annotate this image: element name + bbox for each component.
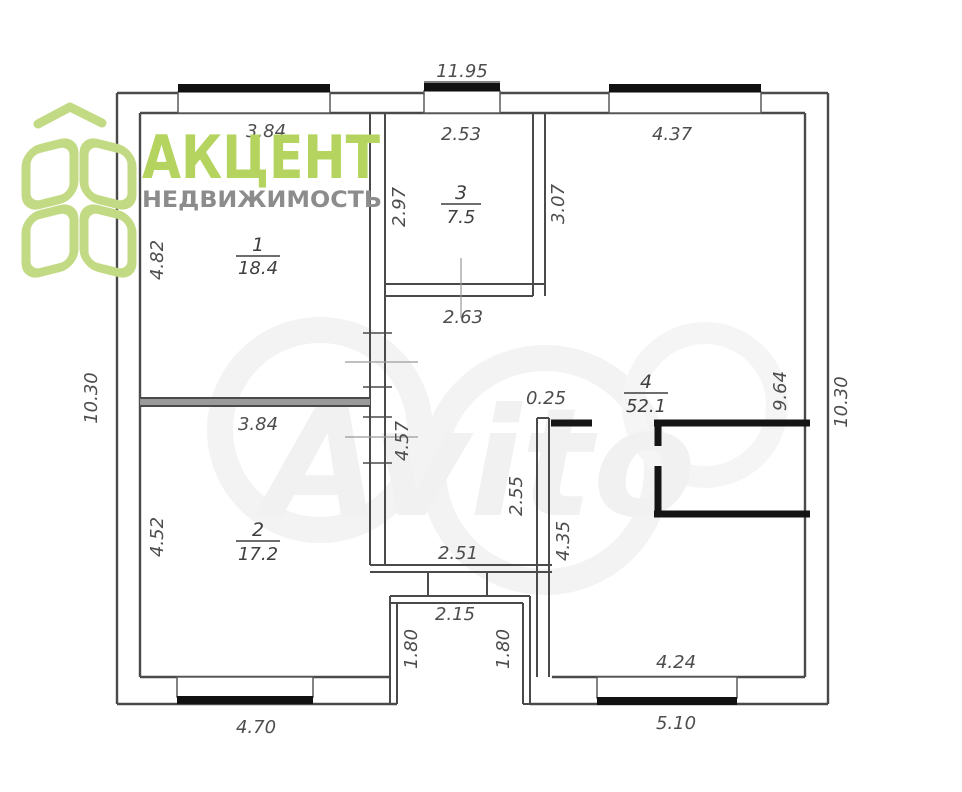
dim-porch-left: 1.80 (401, 629, 422, 669)
logo-petal (26, 140, 74, 208)
room1-number: 1 (252, 234, 264, 256)
dim-room4-bottom: 4.24 (656, 652, 696, 673)
logo-petal (84, 206, 132, 276)
dim-room3-right: 3.07 (548, 183, 569, 224)
dim-top-overall: 11.95 (436, 61, 488, 82)
floor-plan-page: Avito (0, 0, 962, 792)
dim-wall-stub: 0.25 (526, 388, 566, 409)
logo-subtitle-text: НЕДВИЖИМОСТЬ (142, 188, 382, 213)
logo-petal (26, 206, 74, 276)
room3-area: 7.5 (447, 207, 476, 228)
dim-window-bottom-left: 4.70 (236, 717, 276, 738)
logo-brand-text: АКЦЕНТ (142, 123, 380, 193)
room3-number: 3 (455, 182, 467, 204)
window-bottom-left (177, 696, 313, 704)
dim-window-bottom-right: 5.10 (656, 713, 696, 734)
room4-area: 52.1 (626, 396, 666, 417)
dim-room3-bottom: 2.63 (443, 307, 483, 328)
watermark: Avito (220, 330, 777, 582)
dim-room3-left: 2.97 (389, 186, 410, 227)
window-top-left-frame (178, 92, 330, 113)
window-top-middle-frame (424, 91, 500, 113)
window-bottom-right (597, 697, 737, 705)
window-bottom-right-frame (597, 677, 737, 698)
dim-left-overall: 10.30 (81, 372, 102, 424)
window-bottom-left-frame (177, 677, 313, 697)
window-top-middle (424, 83, 500, 91)
dim-hall-bottom: 2.51 (438, 543, 478, 564)
window-top-right-frame (609, 92, 761, 113)
logo-chevron (38, 107, 102, 124)
room2-area: 17.2 (238, 544, 278, 565)
dim-room2-top: 3.84 (238, 414, 278, 435)
dim-room1-height: 4.82 (147, 240, 168, 280)
dim-right-overall: 10.30 (831, 376, 852, 428)
floor-plan-drawing: Avito (0, 0, 962, 792)
window-top-right (609, 84, 761, 92)
logo-petal (84, 140, 132, 208)
dim-hall-wall: 2.55 (506, 476, 527, 516)
dim-room3-top: 2.53 (441, 124, 481, 145)
dim-porch-width: 2.15 (435, 604, 475, 625)
dim-hall-left: 4.57 (392, 420, 413, 461)
dim-room4-right: 9.64 (770, 371, 791, 411)
room4-number: 4 (640, 371, 652, 393)
window-top-left (178, 84, 330, 92)
room1-area: 18.4 (238, 258, 278, 279)
dim-porch-right: 1.80 (493, 629, 514, 669)
dim-room4-left: 4.35 (553, 521, 574, 561)
agency-logo: АКЦЕНТ НЕДВИЖИМОСТЬ (26, 107, 382, 276)
wall-room1-room2-fill (140, 399, 370, 406)
dim-window-top-right: 4.37 (652, 124, 693, 145)
room2-number: 2 (252, 519, 264, 541)
dim-room2-height: 4.52 (147, 517, 168, 557)
